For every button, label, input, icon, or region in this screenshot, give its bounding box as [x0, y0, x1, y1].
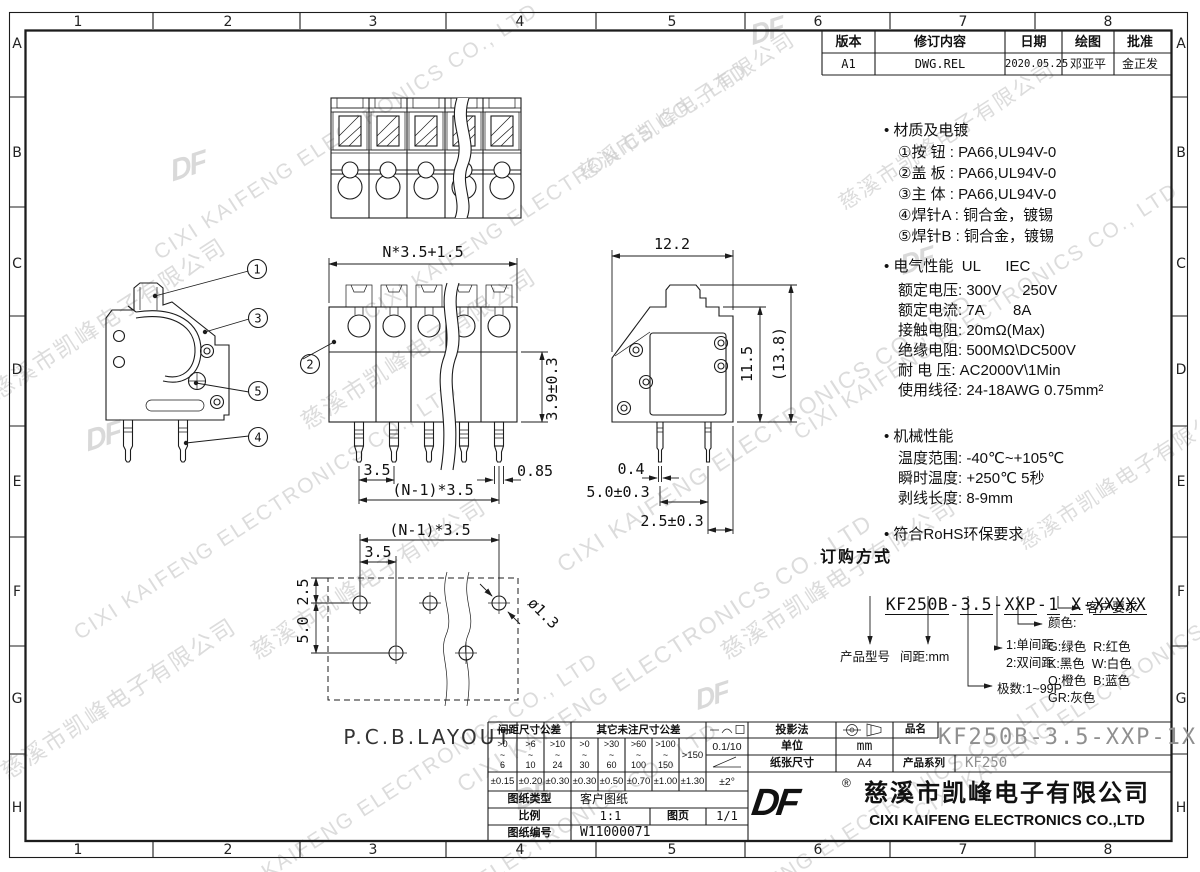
model-poles: XXP — [1004, 595, 1037, 615]
svg-text:1: 1 — [74, 14, 83, 30]
drawing-sheet: CIXI KAIFENG ELECTRONICS CO., LTD 慈溪市凯峰电… — [0, 0, 1200, 872]
svg-text:5: 5 — [668, 842, 677, 858]
mechanical-line: 瞬时温度: +250℃ 5秒 — [898, 470, 1044, 489]
top-view — [331, 98, 521, 218]
svg-text:3.5: 3.5 — [364, 543, 391, 561]
svg-text:(13.8): (13.8) — [770, 327, 788, 381]
series-label: 产品系列 — [893, 755, 955, 772]
angle-icon — [713, 757, 741, 767]
tol-other-header: 其它未注尺寸公差 — [571, 722, 706, 738]
svg-text:C: C — [1176, 256, 1186, 272]
svg-text:2: 2 — [224, 842, 233, 858]
unit-label: 单位 — [748, 738, 836, 755]
revision-version: A1 — [822, 53, 875, 75]
tol-value: ±0.30 — [544, 773, 571, 791]
svg-text:0.4: 0.4 — [617, 460, 644, 478]
svg-text:3: 3 — [369, 14, 378, 30]
material-line: ④焊针A : 铜合金，镀锡 — [898, 207, 1053, 226]
arc-icon — [722, 729, 732, 733]
svg-text:G: G — [1176, 691, 1187, 707]
tol-range: >100 ~ 150 — [652, 739, 679, 771]
svg-text:A: A — [1176, 36, 1186, 52]
tol-range: >10 ~ 24 — [544, 739, 571, 771]
svg-text:1: 1 — [253, 263, 260, 277]
revision-approved-by: 金正发 — [1114, 53, 1166, 75]
callout-balloons: 1 3 5 4 2 — [248, 260, 320, 447]
tol-range: >0 ~ 30 — [571, 739, 598, 771]
svg-text:C: C — [12, 256, 22, 272]
tol-range: >0 ~ 6 — [488, 739, 517, 771]
company-logo: DF — [749, 780, 800, 828]
ordering-label-pitch: 间距:mm — [900, 650, 949, 666]
svg-text:E: E — [13, 474, 22, 490]
model-series: KF250B — [885, 595, 950, 615]
tol-pitch-header: 间距尺寸公差 — [488, 722, 571, 738]
model-dash: - — [949, 595, 959, 614]
revision-col-date: 日期 — [1005, 30, 1062, 53]
tol-range: >60 ~ 100 — [625, 739, 652, 771]
electrical-line: 耐 电 压: AC2000V\1Min — [898, 362, 1061, 381]
svg-text:E: E — [1177, 474, 1186, 490]
svg-text:F: F — [1177, 584, 1185, 600]
svg-text:2: 2 — [224, 14, 233, 30]
ordering-label-color: 颜色: — [1048, 616, 1076, 632]
tol-angle: ±2° — [706, 773, 748, 791]
svg-text:H: H — [12, 800, 23, 816]
registered-mark: ® — [842, 776, 851, 791]
unit-value: mm — [836, 738, 893, 755]
svg-text:6: 6 — [814, 14, 823, 30]
tol-value: ±0.20 — [517, 773, 544, 791]
material-line: ⑤焊针B : 铜合金，镀锡 — [898, 228, 1054, 247]
doc-type-label: 图纸类型 — [488, 791, 571, 808]
svg-text:11.5: 11.5 — [738, 346, 756, 382]
svg-text:N*3.5+1.5: N*3.5+1.5 — [382, 243, 463, 261]
revision-col-version: 版本 — [822, 30, 875, 53]
paper-size-value: A4 — [836, 755, 893, 772]
svg-text:B: B — [12, 145, 22, 161]
doc-no-label: 图纸编号 — [488, 825, 571, 841]
svg-text:5: 5 — [254, 385, 261, 399]
electrical-line: 使用线径: 24-18AWG 0.75mm² — [898, 382, 1103, 401]
electrical-line: 接触电阻: 20mΩ(Max) — [898, 322, 1045, 341]
revision-date: 2020.05.25 — [1005, 53, 1062, 75]
svg-text:4: 4 — [516, 842, 525, 858]
tol-flatness: 0.1/10 — [706, 739, 748, 755]
electrical-line: 额定电压: 300V 250V — [898, 282, 1057, 301]
svg-text:2.5: 2.5 — [294, 578, 312, 605]
tol-range: >30 ~ 60 — [598, 739, 625, 771]
model-color: X — [1070, 595, 1082, 615]
series-value: KF250 — [965, 755, 1085, 772]
ordering-label-double-row: 2:双间距 — [1006, 656, 1054, 672]
tol-value: ±1.00 — [652, 773, 679, 791]
ordering-label-product: 产品型号 — [840, 650, 890, 666]
mechanical-line: 剥线长度: 8-9mm — [898, 490, 1013, 509]
svg-text:2.5±0.3: 2.5±0.3 — [640, 512, 703, 530]
projection-symbol-icon — [843, 724, 881, 736]
electrical-line: 绝缘电阻: 500MΩ\DC500V — [898, 342, 1076, 361]
part-name-label: 品名 — [893, 722, 938, 737]
svg-text:H: H — [1176, 800, 1187, 816]
svg-text:D: D — [12, 362, 23, 378]
svg-text:F: F — [13, 584, 21, 600]
mechanical-line: 温度范围: -40℃~+105℃ — [898, 450, 1064, 469]
square-icon — [736, 726, 744, 734]
svg-text:3: 3 — [369, 842, 378, 858]
ordering-label-single-row: 1:单间距 — [1006, 638, 1054, 654]
tol-value: ±0.50 — [598, 773, 625, 791]
ordering-color-option: O:橙色 B:蓝色 — [1048, 674, 1130, 690]
front-view: N*3.5+1.5 3.9±0.3 3.5 (N-1)*3.5 0.85 — [329, 243, 561, 504]
tol-value: ±1.30 — [679, 773, 706, 791]
page-value: 1/1 — [706, 808, 748, 825]
material-line: ③主 体 : PA66,UL94V-0 — [898, 186, 1056, 205]
svg-text:7: 7 — [959, 14, 968, 30]
svg-text:(N-1)*3.5: (N-1)*3.5 — [389, 521, 470, 539]
ordering-color-option: G:绿色 R:红色 — [1048, 640, 1131, 656]
revision-col-approved: 批准 — [1114, 30, 1166, 53]
model-row-type: 1 — [1047, 595, 1059, 615]
doc-type-value: 客户图纸 — [580, 791, 628, 808]
electrical-title: • 电气性能 UL IEC — [884, 258, 1030, 277]
part-name-value: KF250B-3.5-XXP-1X — [938, 722, 1166, 753]
pcb-layout-view: 2.5 5.0 3.5 (N-1)*3.5 ø1.3 P.C.B.LAYOUT — [294, 521, 562, 749]
paper-size-label: 纸张尺寸 — [748, 755, 836, 772]
material-line: ①按 钮 : PA66,UL94V-0 — [898, 144, 1056, 163]
material-title: • 材质及电镀 — [884, 122, 968, 141]
mechanical-title: • 机械性能 — [884, 428, 953, 447]
side-view: 12.2 11.5 (13.8) 0.4 5.0±0.3 2.5±0.3 — [586, 235, 797, 534]
svg-text:2: 2 — [306, 358, 313, 372]
svg-text:4: 4 — [516, 14, 525, 30]
tol-value: ±0.70 — [625, 773, 652, 791]
svg-text:(N-1)*3.5: (N-1)*3.5 — [392, 481, 473, 499]
svg-text:ø1.3: ø1.3 — [524, 594, 562, 632]
tol-value: ±0.30 — [571, 773, 598, 791]
company-name-en: CIXI KAIFENG ELECTRONICS CO.,LTD — [854, 812, 1160, 831]
ordering-color-option: GR:灰色 — [1048, 691, 1095, 707]
tol-value: ±0.15 — [488, 773, 517, 791]
svg-text:B: B — [1176, 145, 1186, 161]
model-space — [1060, 595, 1070, 614]
scale-label: 比例 — [488, 808, 571, 825]
revision-content: DWG.REL — [875, 53, 1005, 75]
scale-value: 1:1 — [571, 808, 650, 825]
material-line: ②盖 板 : PA66,UL94V-0 — [898, 165, 1056, 184]
svg-text:6: 6 — [814, 842, 823, 858]
ordering-color-option: K:黑色 W:白色 — [1048, 657, 1132, 673]
svg-text:12.2: 12.2 — [654, 235, 690, 253]
ordering-label-customer: 客户要求 — [1086, 600, 1138, 616]
svg-text:4: 4 — [254, 431, 261, 445]
svg-text:3.9±0.3: 3.9±0.3 — [543, 357, 561, 420]
section-view: 1 3 5 4 2 — [106, 260, 336, 463]
svg-text:1: 1 — [74, 842, 83, 858]
svg-text:3.5: 3.5 — [363, 461, 390, 479]
model-dash: - — [993, 595, 1003, 614]
svg-text:3: 3 — [254, 312, 261, 326]
svg-text:5.0: 5.0 — [294, 616, 312, 643]
revision-col-content: 修订内容 — [875, 30, 1005, 53]
revision-drawn-by: 邓亚平 — [1062, 53, 1114, 75]
doc-no-value: W11000071 — [580, 825, 650, 841]
projection-label: 投影法 — [748, 722, 836, 738]
svg-text:8: 8 — [1104, 842, 1113, 858]
svg-text:A: A — [12, 36, 22, 52]
svg-text:G: G — [12, 691, 23, 707]
tol-range-150: >150 — [679, 750, 706, 762]
svg-text:D: D — [1176, 362, 1187, 378]
ordering-title: 订购方式 — [820, 548, 892, 568]
rohs-note: • 符合RoHS环保要求 — [884, 526, 1023, 545]
revision-col-drawn: 绘图 — [1062, 30, 1114, 53]
svg-text:8: 8 — [1104, 14, 1113, 30]
svg-text:5.0±0.3: 5.0±0.3 — [586, 483, 649, 501]
model-pitch: 3.5 — [960, 595, 993, 615]
svg-text:5: 5 — [668, 14, 677, 30]
model-dash: - — [1037, 595, 1047, 614]
tol-range: >6 ~ 10 — [517, 739, 544, 771]
electrical-line: 额定电流: 7A 8A — [898, 302, 1031, 321]
svg-text:7: 7 — [959, 842, 968, 858]
page-label: 图页 — [650, 808, 706, 825]
company-name-cn: 慈溪市凯峰电子有限公司 — [854, 779, 1160, 809]
svg-text:0.85: 0.85 — [517, 462, 553, 480]
